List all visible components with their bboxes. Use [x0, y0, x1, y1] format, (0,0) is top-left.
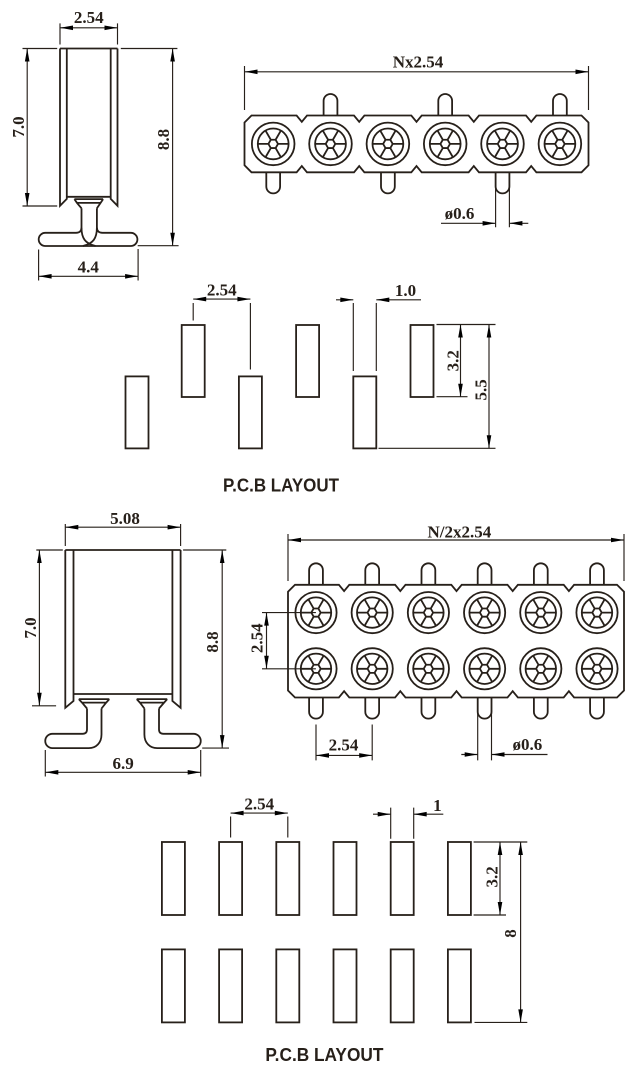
svg-text:2.54: 2.54: [207, 280, 237, 299]
svg-text:7.0: 7.0: [21, 617, 40, 638]
svg-text:2.54: 2.54: [244, 794, 274, 813]
svg-text:5.08: 5.08: [110, 509, 140, 528]
svg-text:P.C.B LAYOUT: P.C.B LAYOUT: [223, 475, 339, 495]
svg-text:8.8: 8.8: [154, 129, 173, 150]
svg-text:5.5: 5.5: [472, 379, 491, 400]
svg-text:2.54: 2.54: [329, 736, 359, 755]
svg-text:1: 1: [433, 796, 442, 815]
svg-text:3.2: 3.2: [443, 350, 462, 371]
svg-text:3.2: 3.2: [483, 866, 502, 887]
svg-text:Nx2.54: Nx2.54: [393, 52, 444, 71]
svg-text:7.0: 7.0: [9, 116, 28, 137]
svg-text:P.C.B LAYOUT: P.C.B LAYOUT: [265, 1045, 383, 1065]
svg-text:8: 8: [501, 929, 520, 938]
svg-text:2.54: 2.54: [248, 623, 267, 653]
svg-text:1.0: 1.0: [395, 281, 416, 300]
svg-text:N/2x2.54: N/2x2.54: [428, 522, 492, 541]
svg-text:6.9: 6.9: [112, 754, 133, 773]
svg-text:ø0.6: ø0.6: [513, 735, 543, 754]
svg-text:8.8: 8.8: [203, 631, 222, 652]
svg-text:2.54: 2.54: [74, 8, 104, 27]
svg-text:4.4: 4.4: [78, 257, 100, 276]
svg-text:ø0.6: ø0.6: [445, 204, 475, 223]
